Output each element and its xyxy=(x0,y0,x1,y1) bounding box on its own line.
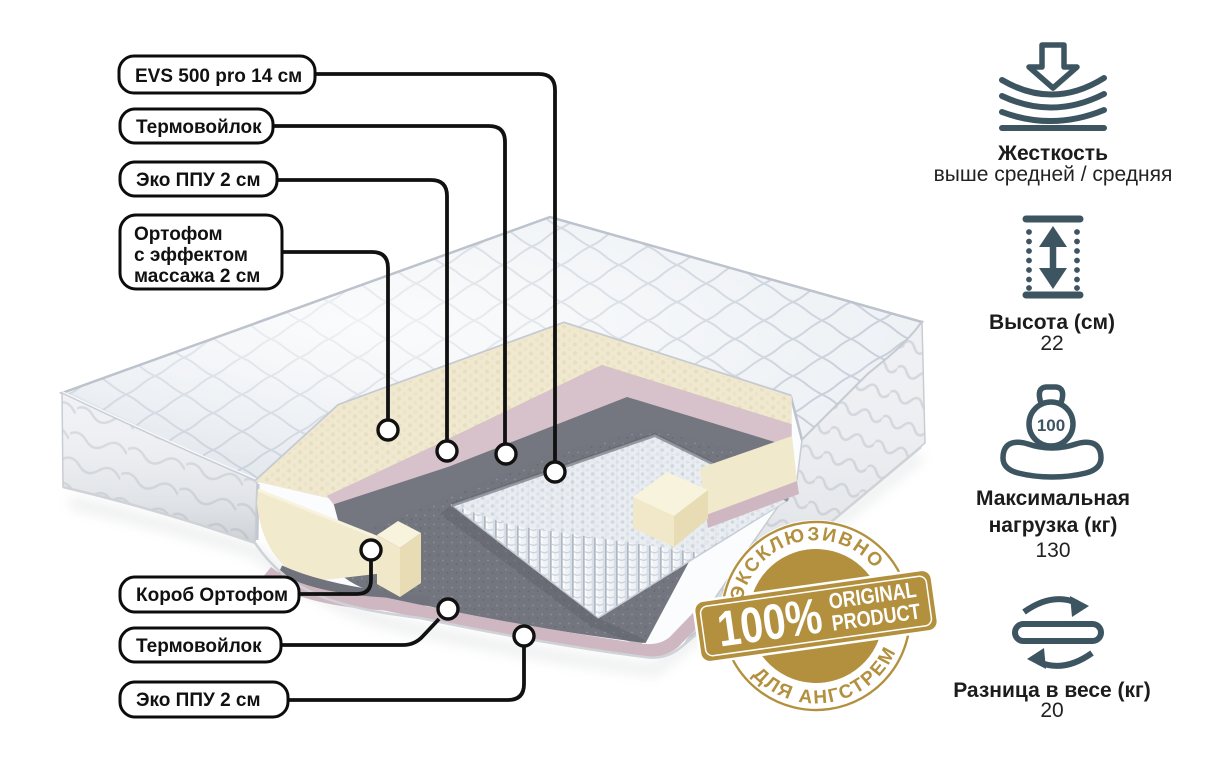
svg-text:нагрузка (кг): нагрузка (кг) xyxy=(989,514,1118,537)
svg-text:100: 100 xyxy=(1037,416,1065,435)
svg-text:Максимальная: Максимальная xyxy=(976,487,1130,510)
svg-text:EVS 500 pro 14 см: EVS 500 pro 14 см xyxy=(135,66,302,87)
svg-text:Ортофом: Ортофом xyxy=(134,224,223,245)
svg-text:Короб Ортофом: Короб Ортофом xyxy=(136,585,288,606)
svg-text:выше средней / средняя: выше средней / средняя xyxy=(934,163,1173,186)
svg-text:Эко ППУ 2 см: Эко ППУ 2 см xyxy=(136,170,261,191)
svg-text:22: 22 xyxy=(1040,332,1063,355)
svg-text:20: 20 xyxy=(1040,699,1063,722)
svg-text:Термовойлок: Термовойлок xyxy=(136,117,262,138)
svg-text:130: 130 xyxy=(1035,539,1070,562)
svg-text:массажа 2 см: массажа 2 см xyxy=(134,266,260,287)
svg-text:Термовойлок: Термовойлок xyxy=(136,636,262,657)
svg-text:с эффектом: с эффектом xyxy=(134,245,248,266)
svg-text:Жесткость: Жесткость xyxy=(997,142,1108,165)
svg-text:Эко ППУ 2 см: Эко ППУ 2 см xyxy=(136,690,261,711)
svg-text:Высота (см): Высота (см) xyxy=(989,311,1115,334)
